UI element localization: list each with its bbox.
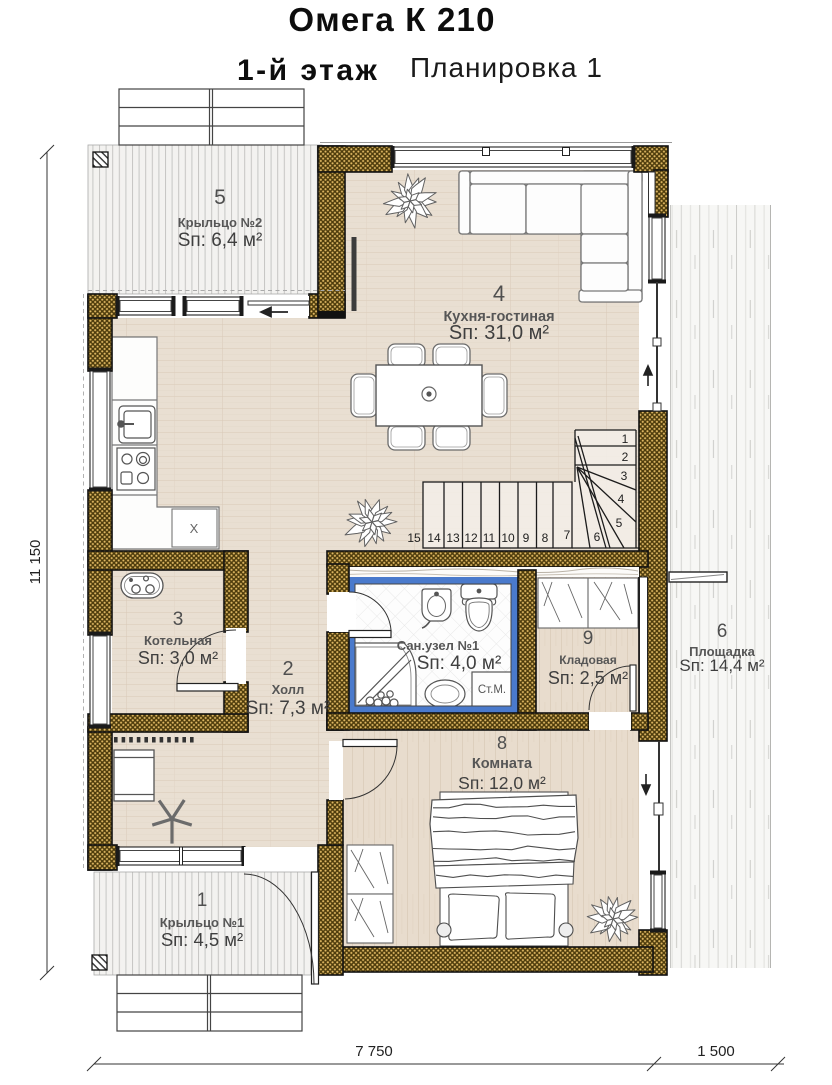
svg-text:11 150: 11 150 [27,540,44,585]
svg-text:3: 3 [173,609,184,630]
svg-text:Ст.М.: Ст.М. [478,684,506,696]
svg-text:1: 1 [197,890,208,911]
svg-text:2: 2 [282,658,293,680]
svg-text:4: 4 [493,281,505,306]
svg-text:6: 6 [717,621,728,642]
svg-text:Sп: 4,0 м²: Sп: 4,0 м² [417,653,502,674]
svg-text:9: 9 [523,531,530,545]
svg-text:10: 10 [501,531,515,545]
svg-text:1-й этаж: 1-й этаж [237,54,379,87]
svg-text:Крыльцо №1: Крыльцо №1 [160,915,245,930]
svg-text:3: 3 [621,469,628,483]
svg-text:6: 6 [594,530,601,544]
svg-text:Sп: 14,4 м²: Sп: 14,4 м² [679,656,764,675]
svg-text:Котельная: Котельная [144,633,212,648]
svg-text:13: 13 [446,531,460,545]
svg-text:Sп: 3,0 м²: Sп: 3,0 м² [138,648,218,668]
svg-text:1 500: 1 500 [697,1043,735,1060]
svg-text:11: 11 [483,531,496,545]
svg-text:5: 5 [214,186,226,209]
svg-text:Омега К 210: Омега К 210 [288,1,495,38]
svg-text:Планировка 1: Планировка 1 [410,52,603,83]
svg-text:7: 7 [564,528,571,542]
svg-text:X: X [190,521,199,536]
svg-text:Sп: 12,0 м²: Sп: 12,0 м² [458,773,546,793]
svg-text:Кладовая: Кладовая [559,653,616,667]
svg-text:Sп: 31,0 м²: Sп: 31,0 м² [449,322,550,344]
svg-text:8: 8 [542,531,549,545]
svg-text:5: 5 [616,516,623,530]
svg-text:12: 12 [464,531,478,545]
svg-text:Крыльцо №2: Крыльцо №2 [178,215,263,230]
svg-text:1: 1 [622,432,629,446]
svg-text:Sп: 6,4 м²: Sп: 6,4 м² [178,230,263,251]
svg-text:9: 9 [583,628,594,649]
svg-text:Комната: Комната [472,756,533,772]
svg-text:Sп: 4,5 м²: Sп: 4,5 м² [161,929,243,950]
svg-text:Sп: 2,5 м²: Sп: 2,5 м² [548,668,628,688]
svg-text:Sп: 7,3 м²: Sп: 7,3 м² [246,698,331,719]
svg-text:7 750: 7 750 [355,1043,393,1060]
svg-text:14: 14 [427,531,441,545]
svg-text:Сан.узел №1: Сан.узел №1 [397,638,479,653]
svg-text:15: 15 [407,531,421,545]
svg-text:4: 4 [618,492,625,506]
svg-text:Холл: Холл [272,682,305,697]
svg-text:2: 2 [622,450,629,464]
svg-text:8: 8 [497,733,507,753]
